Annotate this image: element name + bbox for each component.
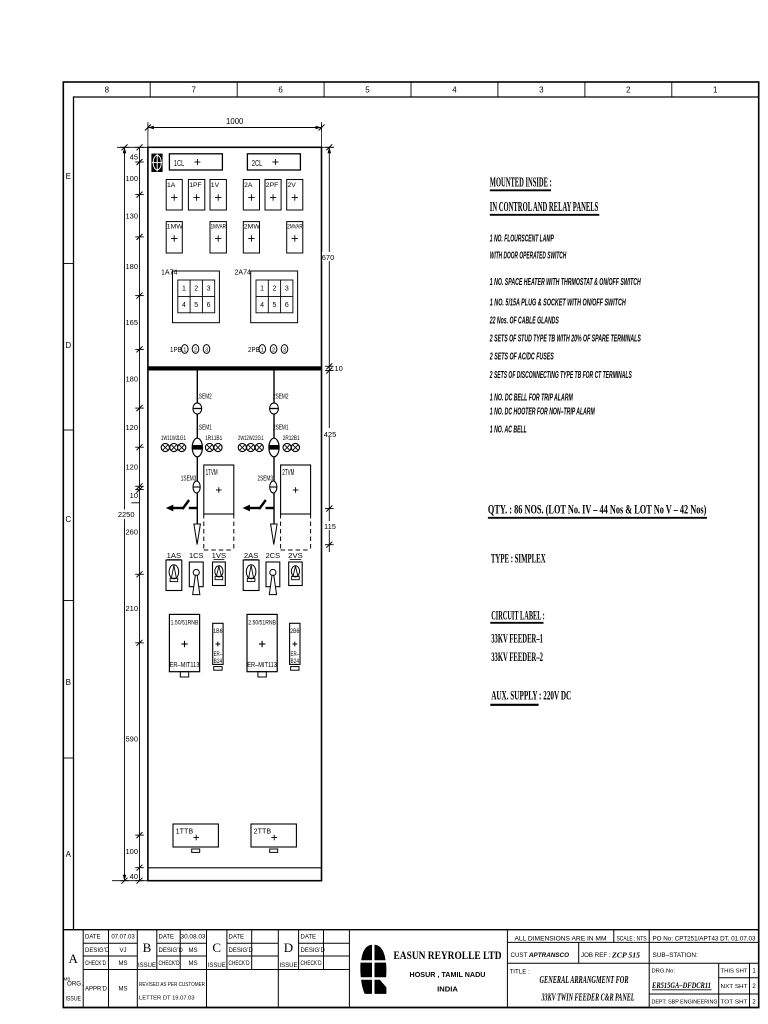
svg-text:ER515GA–DFDCR11: ER515GA–DFDCR11: [651, 980, 711, 990]
svg-text:E: E: [66, 172, 71, 181]
svg-text:1SEM3: 1SEM3: [181, 474, 197, 483]
svg-text:1: 1: [261, 348, 264, 354]
svg-text:SCALE : NTS: SCALE : NTS: [617, 936, 647, 943]
svg-text:HOSUR , TAMIL NADU: HOSUR , TAMIL NADU: [410, 970, 486, 979]
svg-text:1 NO. AC BELL: 1 NO. AC BELL: [490, 424, 527, 435]
svg-text:1000: 1000: [226, 117, 244, 126]
svg-text:1SEM2: 1SEM2: [196, 392, 212, 401]
svg-text:CHECK’D: CHECK’D: [229, 961, 251, 967]
svg-text:MS: MS: [119, 961, 128, 967]
svg-text:30.08.03: 30.08.03: [181, 935, 207, 941]
svg-text:2 SETS OF AC/DC FUSES: 2 SETS OF AC/DC FUSES: [489, 352, 554, 363]
svg-text:1: 1: [260, 286, 264, 293]
svg-text:07.07.03: 07.07.03: [111, 935, 135, 941]
svg-text:180: 180: [125, 374, 138, 383]
svg-text:A: A: [66, 850, 72, 859]
svg-text:TOT SHT: TOT SHT: [721, 999, 748, 1005]
svg-text:B24: B24: [214, 658, 223, 665]
svg-text:2TTB: 2TTB: [254, 827, 272, 836]
svg-text:1CL: 1CL: [174, 158, 185, 168]
svg-text:ZCP 515: ZCP 515: [611, 951, 640, 960]
svg-text:C: C: [212, 940, 221, 955]
svg-text:C: C: [65, 515, 71, 524]
svg-text:210: 210: [125, 604, 138, 613]
svg-text:3: 3: [539, 86, 544, 95]
svg-text:4: 4: [452, 86, 457, 95]
svg-text:QTY. : 86 NOS. (LOT No. IV – 4: QTY. : 86 NOS. (LOT No. IV – 44 Nos & LO…: [488, 502, 707, 517]
svg-text:DRG.No:: DRG.No:: [652, 969, 676, 975]
svg-text:CIRCUIT LABEL :: CIRCUIT LABEL :: [491, 608, 545, 623]
svg-text:2A74: 2A74: [235, 268, 252, 277]
svg-text:1.50/51RNB: 1.50/51RNB: [171, 620, 199, 627]
svg-text:2SEM2: 2SEM2: [273, 392, 289, 401]
svg-text:DEPT: SBP ENGINEERING: DEPT: SBP ENGINEERING: [652, 999, 718, 1005]
svg-text:1 NO. DC BELL FOR TRIP ALARM: 1 NO. DC BELL FOR TRIP ALARM: [490, 392, 573, 403]
svg-text:MS: MS: [189, 961, 198, 967]
svg-text:1MVAR: 1MVAR: [211, 224, 226, 231]
svg-text:DESIG’D: DESIG’D: [159, 948, 184, 954]
svg-text:DATE: DATE: [159, 935, 175, 941]
svg-text:INDIA: INDIA: [437, 985, 458, 994]
svg-text:33KV FEEDER–2: 33KV FEEDER–2: [491, 649, 543, 664]
svg-text:120: 120: [125, 462, 138, 471]
svg-text:CHECK’D: CHECK’D: [301, 961, 323, 967]
svg-text:2: 2: [194, 348, 197, 354]
svg-text:ER–: ER–: [214, 651, 223, 658]
svg-text:DESIG’D: DESIG’D: [301, 948, 326, 954]
svg-text:180: 180: [125, 262, 138, 271]
svg-text:2MW: 2MW: [244, 224, 260, 231]
svg-text:115: 115: [324, 522, 336, 531]
svg-text:DESIG’D: DESIG’D: [85, 948, 110, 954]
svg-text:D: D: [65, 341, 71, 350]
svg-text:1 NO. FLOURSCENT LAMP: 1 NO. FLOURSCENT LAMP: [490, 233, 554, 244]
svg-text:ER–: ER–: [291, 651, 300, 658]
svg-text:B: B: [143, 940, 152, 955]
svg-text:130: 130: [125, 211, 138, 220]
svg-text:WITH DOOR OPERATED SWITCH: WITH DOOR OPERATED SWITCH: [490, 251, 567, 262]
svg-text:2B6: 2B6: [290, 628, 299, 635]
svg-text:EASUN REYROLLE LTD: EASUN REYROLLE LTD: [394, 950, 502, 962]
svg-text:LETTER DT 19.07.03: LETTER DT 19.07.03: [139, 996, 195, 1002]
svg-text:2.50/51RNB: 2.50/51RNB: [248, 620, 276, 627]
svg-text:2PB: 2PB: [248, 347, 260, 354]
svg-text:4: 4: [260, 302, 264, 309]
svg-text:ISSUE: ISSUE: [279, 963, 297, 969]
svg-text:1PB: 1PB: [170, 347, 182, 354]
svg-text:1B6: 1B6: [213, 628, 222, 635]
svg-text:1: 1: [183, 348, 186, 354]
svg-text:REVISED AS PER CUSTOMER: REVISED AS PER CUSTOMER: [139, 982, 205, 988]
svg-text:33KV FEEDER–1: 33KV FEEDER–1: [491, 630, 543, 645]
svg-text:2AS: 2AS: [244, 551, 259, 560]
svg-text:CHECK’D: CHECK’D: [85, 961, 107, 967]
svg-text:2G1: 2G1: [255, 435, 264, 442]
svg-text:2A: 2A: [244, 182, 253, 189]
svg-text:3: 3: [283, 348, 286, 354]
svg-text:1: 1: [182, 286, 186, 293]
svg-text:2: 2: [626, 86, 631, 95]
svg-text:100: 100: [125, 847, 138, 856]
svg-text:2W2: 2W2: [246, 435, 255, 442]
svg-text:1CS: 1CS: [189, 551, 204, 560]
svg-text:2B1: 2B1: [291, 435, 300, 442]
svg-text:4: 4: [182, 302, 186, 309]
svg-text:2CL: 2CL: [252, 158, 263, 168]
svg-text:VJ: VJ: [119, 948, 126, 954]
svg-text:1B1: 1B1: [214, 435, 223, 442]
svg-text:6: 6: [207, 302, 211, 309]
svg-text:3: 3: [207, 286, 211, 293]
svg-text:2CS: 2CS: [266, 551, 281, 560]
svg-text:ISSUE: ISSUE: [208, 963, 226, 969]
svg-text:40: 40: [130, 872, 138, 881]
svg-text:1: 1: [713, 86, 718, 95]
svg-text:B24: B24: [291, 658, 300, 665]
svg-text:ER–MIT113: ER–MIT113: [170, 660, 200, 669]
svg-text:DESIG’D: DESIG’D: [229, 948, 254, 954]
svg-text:D: D: [284, 940, 293, 955]
svg-text:3: 3: [205, 348, 208, 354]
svg-text:5: 5: [272, 302, 276, 309]
svg-text:1 NO. SPACE HEATER WITH THRMOS: 1 NO. SPACE HEATER WITH THRMOSTAT & ON/O…: [490, 277, 641, 288]
svg-text:2: 2: [194, 286, 198, 293]
svg-text:5: 5: [365, 86, 370, 95]
svg-text:670: 670: [322, 253, 335, 262]
svg-text:AUX. SUPPLY : 220V DC: AUX. SUPPLY : 220V DC: [491, 688, 571, 703]
svg-text:GENERAL ARRANGMENT FOR: GENERAL ARRANGMENT FOR: [540, 975, 629, 986]
svg-text:2: 2: [272, 348, 275, 354]
svg-text:TYPE : SIMPLEX: TYPE : SIMPLEX: [491, 551, 546, 566]
svg-text:1A: 1A: [167, 182, 176, 189]
svg-text:100: 100: [125, 174, 138, 183]
svg-text:JOB REF :: JOB REF :: [581, 952, 611, 959]
svg-text:B: B: [66, 678, 71, 687]
svg-text:6: 6: [285, 302, 289, 309]
svg-text:2VS: 2VS: [288, 551, 303, 560]
svg-text:1W1: 1W1: [161, 435, 170, 442]
svg-text:ORG.: ORG.: [67, 981, 83, 988]
svg-text:2PF: 2PF: [266, 182, 278, 189]
svg-text:2 SETS OF STUD TYPE TB WITH 20: 2 SETS OF STUD TYPE TB WITH 20% OF SPARE…: [489, 333, 641, 344]
svg-text:2V: 2V: [288, 182, 297, 189]
svg-text:2: 2: [272, 286, 276, 293]
svg-text:TITLE :: TITLE :: [510, 969, 531, 976]
svg-text:22 Nos. OF CABLE GLANDS: 22 Nos. OF CABLE GLANDS: [489, 315, 559, 326]
svg-text:SUB–STATION:: SUB–STATION:: [653, 952, 698, 959]
svg-text:CHECK’D: CHECK’D: [159, 961, 181, 967]
svg-text:3: 3: [285, 286, 289, 293]
svg-text:CUST :: CUST :: [511, 952, 531, 959]
svg-text:7: 7: [191, 86, 196, 95]
svg-text:A: A: [69, 951, 79, 966]
svg-text:2SEM3: 2SEM3: [258, 474, 274, 483]
svg-text:1G1: 1G1: [177, 435, 186, 442]
svg-text:10: 10: [335, 364, 343, 373]
svg-text:5: 5: [194, 302, 198, 309]
svg-text:APTRANSCO: APTRANSCO: [528, 952, 569, 959]
svg-text:8: 8: [105, 86, 110, 95]
svg-text:1SEM1: 1SEM1: [196, 423, 212, 432]
svg-text:PO No: CPT251/APT43 DT. 01.: PO No: CPT251/APT43 DT. 01.07.03: [653, 936, 757, 943]
svg-text:DATE: DATE: [229, 935, 245, 941]
svg-text:425: 425: [324, 430, 337, 439]
svg-text:MS: MS: [189, 948, 198, 954]
svg-text:MS: MS: [119, 987, 128, 993]
svg-text:45: 45: [130, 153, 138, 162]
svg-text:DATE: DATE: [85, 935, 101, 941]
svg-text:6: 6: [278, 86, 283, 95]
svg-text:1TTB: 1TTB: [176, 827, 194, 836]
svg-text:ALL DIMENSIONS ARE IN MM: ALL DIMENSIONS ARE IN MM: [515, 936, 607, 943]
svg-text:IN CONTROL AND RELAY PANELS: IN CONTROL AND RELAY PANELS: [490, 199, 599, 214]
svg-text:2 SETS OF DISCONNECTING TYPE T: 2 SETS OF DISCONNECTING TYPE TB FOR CT T…: [489, 370, 632, 381]
svg-text:ER–MIT113: ER–MIT113: [247, 660, 277, 669]
svg-text:THIS SHT: THIS SHT: [721, 969, 748, 975]
svg-text:1PF: 1PF: [189, 182, 201, 189]
svg-text:DATE: DATE: [301, 935, 317, 941]
svg-text:260: 260: [125, 528, 138, 537]
svg-text:120: 120: [125, 423, 138, 432]
svg-text:2SEM1: 2SEM1: [273, 423, 289, 432]
svg-text:ISSUE: ISSUE: [138, 963, 156, 969]
svg-text:1MW: 1MW: [167, 224, 183, 231]
svg-text:1VS: 1VS: [212, 551, 227, 560]
svg-text:1A74: 1A74: [161, 268, 178, 277]
svg-text:NXT SHT: NXT SHT: [721, 984, 748, 990]
svg-text:10: 10: [130, 491, 138, 500]
svg-text:APPR’D: APPR’D: [85, 987, 108, 993]
svg-text:1 NO. 5/15A PLUG & SOCKET WITH: 1 NO. 5/15A PLUG & SOCKET WITH ON/OFF SW…: [490, 298, 626, 309]
svg-text:590: 590: [125, 735, 138, 744]
svg-text:2MVAR: 2MVAR: [287, 224, 302, 231]
svg-text:33KV TWIN FEEDER C&R PANEL: 33KV TWIN FEEDER C&R PANEL: [541, 993, 635, 1004]
svg-text:2TVM: 2TVM: [282, 467, 294, 477]
svg-text:1TVM: 1TVM: [206, 467, 218, 477]
svg-text:165: 165: [125, 318, 138, 327]
svg-text:2250: 2250: [118, 510, 135, 519]
svg-text:1AS: 1AS: [167, 551, 182, 560]
svg-text:1 NO. DC HOOTER FOR NON–TRIP A: 1 NO. DC HOOTER FOR NON–TRIP ALARM: [490, 406, 595, 417]
svg-text:1V: 1V: [211, 182, 220, 189]
svg-text:ISSUE: ISSUE: [66, 996, 82, 1003]
svg-text:MOUNTED INSIDE :: MOUNTED INSIDE :: [490, 175, 552, 190]
